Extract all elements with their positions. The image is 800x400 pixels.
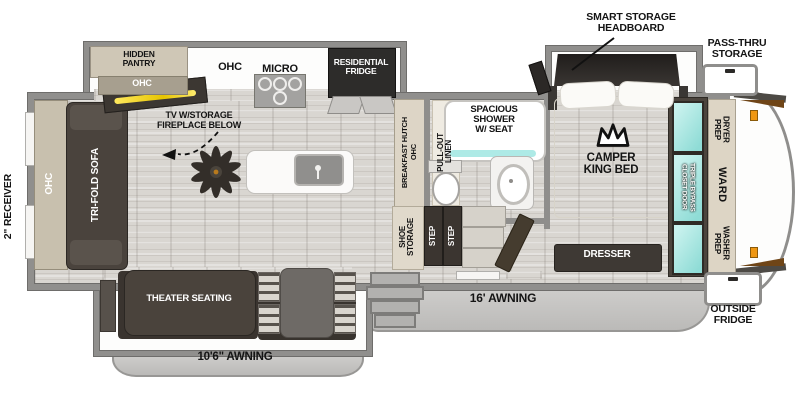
fridge-door-right [359,96,397,114]
bottom-wall-window [456,271,500,280]
residential-fridge-label: RESIDENTIAL FRIDGE [330,58,392,76]
sofa-label: TRI-FOLD SOFA [80,118,112,252]
headboard [554,54,680,86]
smart-storage-headboard-label: SMART STORAGE HEADBOARD [566,12,696,34]
hidden-pantry-label: HIDDEN PANTRY [100,50,178,68]
step-lower: STEP [443,206,462,266]
pass-thru-door [702,64,758,96]
rear-ohc-label: OHC [36,146,64,222]
shower-label: SPACIOUS SHOWER W/ SEAT [452,105,536,135]
cap-handle-bottom [750,247,758,258]
outside-fridge-door [704,272,762,306]
washer-prep-label: WASHER PREP [707,216,735,270]
dinette-chair-3 [334,272,356,302]
entry-steps-bar-3 [370,300,420,314]
breakfast-hutch-label: BREAKFAST HUTCH OHC [394,101,424,204]
crown-icon [593,122,633,152]
cooktop-icon [254,74,306,108]
camper-king-bed-label: CAMPER KING BED [554,152,668,177]
bedroom-step-2 [462,227,504,248]
bedroom-step-1 [462,206,506,227]
tv-fireplace-label: TV W/STORAGE FIREPLACE BELOW [140,111,258,130]
shoe-storage-label: SHOE STORAGE [392,208,422,266]
step-upper: STEP [424,206,443,266]
dinette-chair-4 [334,304,356,334]
receiver-label: 2" RECEIVER [0,148,18,266]
dryer-prep-label: DRYER PREP [707,102,735,156]
dinette-chair-2 [258,304,280,334]
ward-label: WARD [707,158,735,212]
pillow-left [559,81,616,110]
dresser-label: DRESSER [556,250,658,261]
micro-label: MICRO [252,64,308,76]
entry-steps-bar-4 [374,314,416,328]
outside-fridge-label: OUTSIDE FRIDGE [696,304,770,326]
pillow-right [617,81,674,110]
kitchen-ohc-label: OHC [206,62,254,74]
floorplan-canvas: 16' AWNING 10'6" AWNING 2" RECEIVER OHC … [0,0,800,400]
dinette-table [280,268,334,338]
pass-thru-storage-label: PASS-THRU STORAGE [690,38,784,60]
theater-slide-window [100,280,116,332]
awning-rear-label: 10'6" AWNING [170,351,300,363]
step-lower-label: STEP [444,207,461,265]
entry-steps-bar-2 [366,286,424,300]
theater-seating-label: THEATER SEATING [126,294,252,304]
pantry-ohc-label: OHC [98,79,186,89]
cap-handle-top [750,110,758,121]
closet-mirror-bottom [672,223,704,275]
closet-label: TRIPLE BYPASS CLOSET DOOR [667,150,707,224]
kitchen-sink-icon [294,154,344,186]
dinette-chair-1 [258,272,280,302]
closet-mirror-top [672,101,704,153]
step-upper-label: STEP [425,207,442,265]
entry-steps-bar-1 [370,272,420,286]
ceiling-fan-icon [186,142,246,202]
awning-main-label: 16' AWNING [448,292,558,305]
bathroom-sink-icon [490,156,534,210]
entry-door-opening [506,271,542,279]
